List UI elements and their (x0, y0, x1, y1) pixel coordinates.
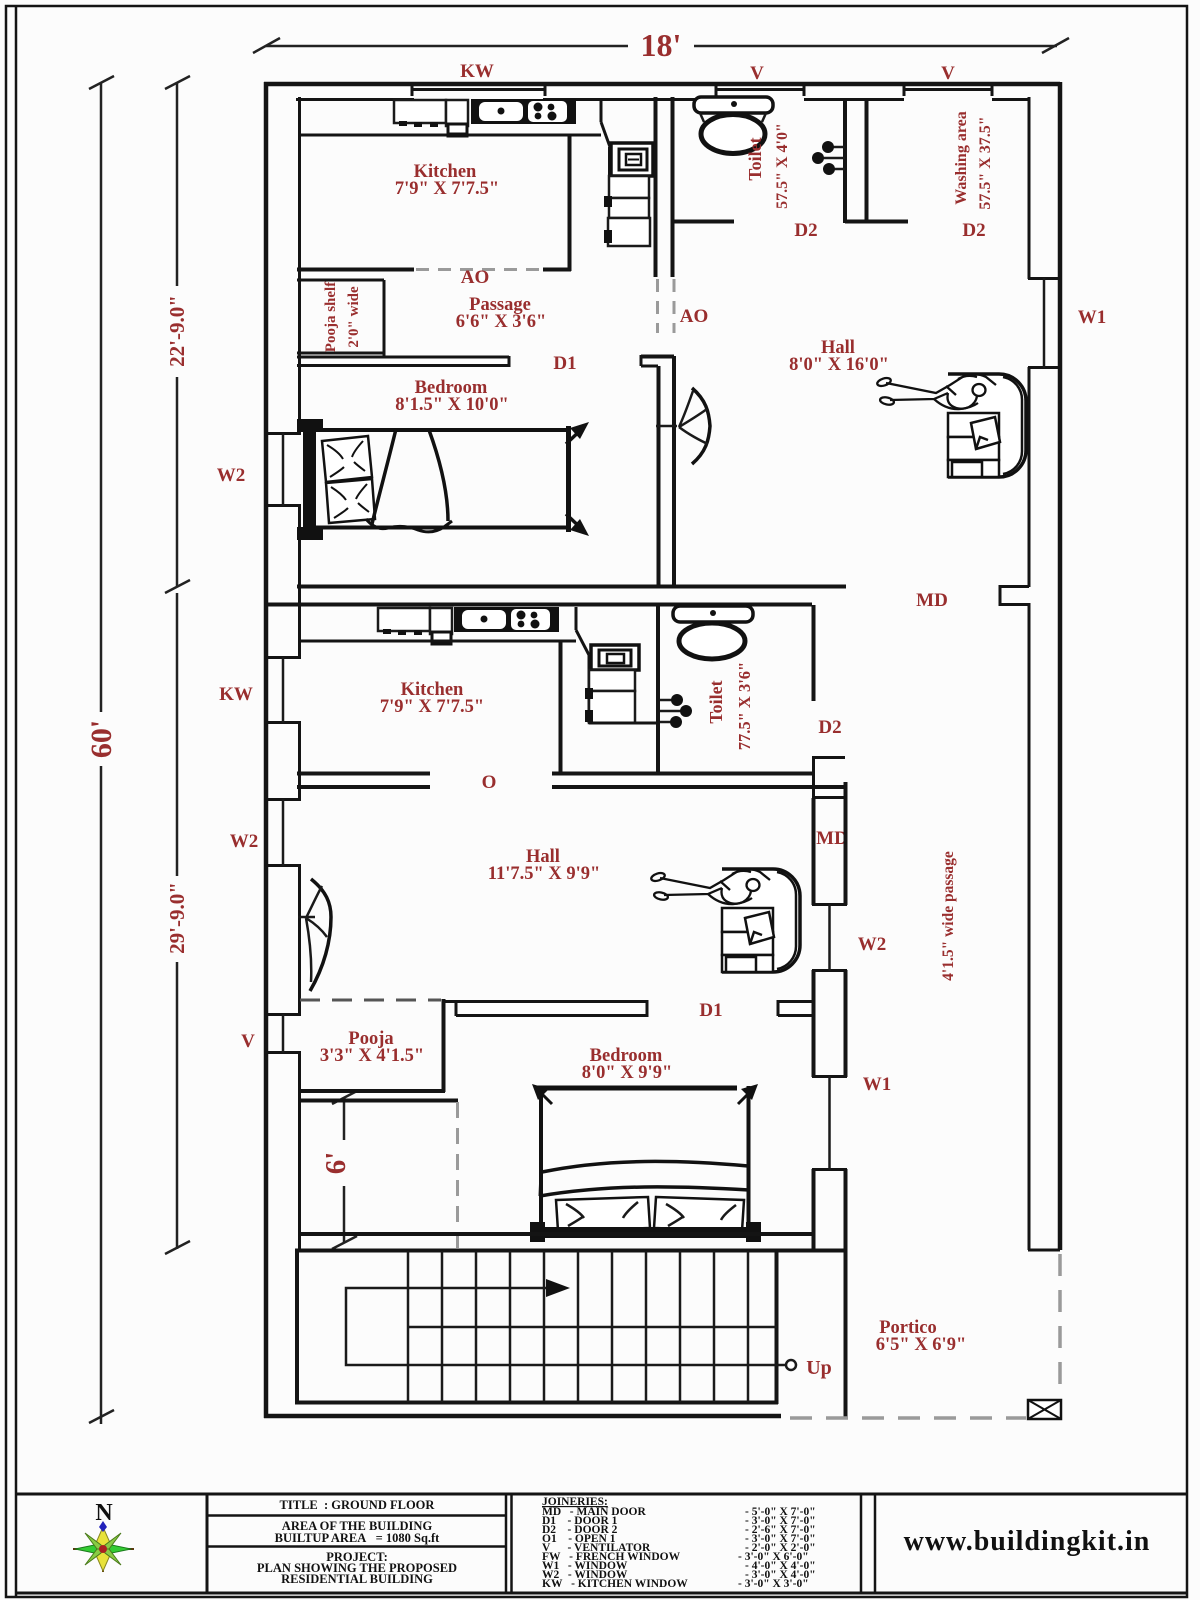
svg-text:57.5" X 4'0": 57.5" X 4'0" (774, 123, 791, 209)
svg-text:V: V (750, 63, 764, 84)
svg-text:V: V (941, 63, 955, 84)
svg-text:W2: W2 (217, 465, 246, 486)
svg-text:8'0" X 9'9": 8'0" X 9'9" (582, 1063, 672, 1083)
svg-text:O: O (482, 772, 497, 793)
svg-text:AO: AO (461, 267, 490, 288)
svg-text:KW - KITCHEN WINDOW: KW - KITCHEN WINDOW (542, 1578, 688, 1590)
svg-text:Washing area: Washing area (953, 111, 970, 205)
svg-text:57.5" X 37.5": 57.5" X 37.5" (977, 116, 994, 209)
svg-text:Toilet: Toilet (745, 137, 765, 180)
svg-text:11'7.5" X 9'9": 11'7.5" X 9'9" (488, 864, 601, 884)
svg-text:18': 18' (641, 27, 682, 63)
svg-text:6': 6' (320, 1152, 352, 1175)
svg-text:D1: D1 (699, 1000, 722, 1021)
svg-text:W2: W2 (858, 934, 887, 955)
svg-text:D2: D2 (794, 220, 817, 241)
svg-text:V: V (241, 1031, 255, 1052)
svg-text:KW: KW (219, 684, 253, 705)
svg-text:3'3" X 4'1.5": 3'3" X 4'1.5" (320, 1046, 424, 1066)
svg-text:MD: MD (916, 590, 948, 611)
svg-text:7'9" X 7'7.5": 7'9" X 7'7.5" (395, 179, 499, 199)
svg-text:W2: W2 (230, 831, 259, 852)
svg-text:N: N (95, 1500, 113, 1526)
svg-text:8'1.5" X 10'0": 8'1.5" X 10'0" (395, 395, 509, 415)
svg-text:MD: MD (816, 828, 848, 849)
svg-text:AO: AO (680, 306, 709, 327)
svg-text:4'1.5" wide passage: 4'1.5" wide passage (940, 851, 957, 981)
svg-text:www.buildingkit.in: www.buildingkit.in (904, 1526, 1151, 1557)
svg-text:RESIDENTIAL BUILDING: RESIDENTIAL BUILDING (281, 1572, 433, 1586)
svg-text:KW: KW (460, 61, 494, 82)
svg-text:Pooja shelf: Pooja shelf (323, 281, 339, 352)
svg-text:W1: W1 (863, 1074, 892, 1095)
svg-text:Up: Up (806, 1357, 832, 1379)
svg-text:Toilet: Toilet (706, 680, 726, 723)
svg-text:D1: D1 (553, 353, 576, 374)
svg-text:22'-9.0": 22'-9.0" (165, 295, 189, 367)
svg-text:2'0" wide: 2'0" wide (346, 286, 362, 348)
svg-text:W1: W1 (1078, 307, 1107, 328)
svg-text:D2: D2 (962, 220, 985, 241)
svg-text:D2: D2 (818, 717, 841, 738)
svg-text:60': 60' (85, 720, 118, 758)
svg-text:6'5" X 6'9": 6'5" X 6'9" (876, 1335, 966, 1355)
svg-text:- 3'-0" X 3'-0": - 3'-0" X 3'-0" (738, 1578, 809, 1590)
svg-text:77.5" X 3'6": 77.5" X 3'6" (735, 662, 754, 750)
svg-text:8'0" X 16'0": 8'0" X 16'0" (789, 355, 889, 375)
svg-text:6'6" X 3'6": 6'6" X 3'6" (456, 312, 546, 332)
svg-text:29'-9.0": 29'-9.0" (165, 882, 189, 954)
svg-text:7'9" X 7'7.5": 7'9" X 7'7.5" (380, 697, 484, 717)
svg-text:TITLE : GROUND FLOOR: TITLE : GROUND FLOOR (280, 1498, 436, 1512)
svg-text:BUILTUP AREA = 1080 Sq.ft: BUILTUP AREA = 1080 Sq.ft (275, 1531, 441, 1545)
